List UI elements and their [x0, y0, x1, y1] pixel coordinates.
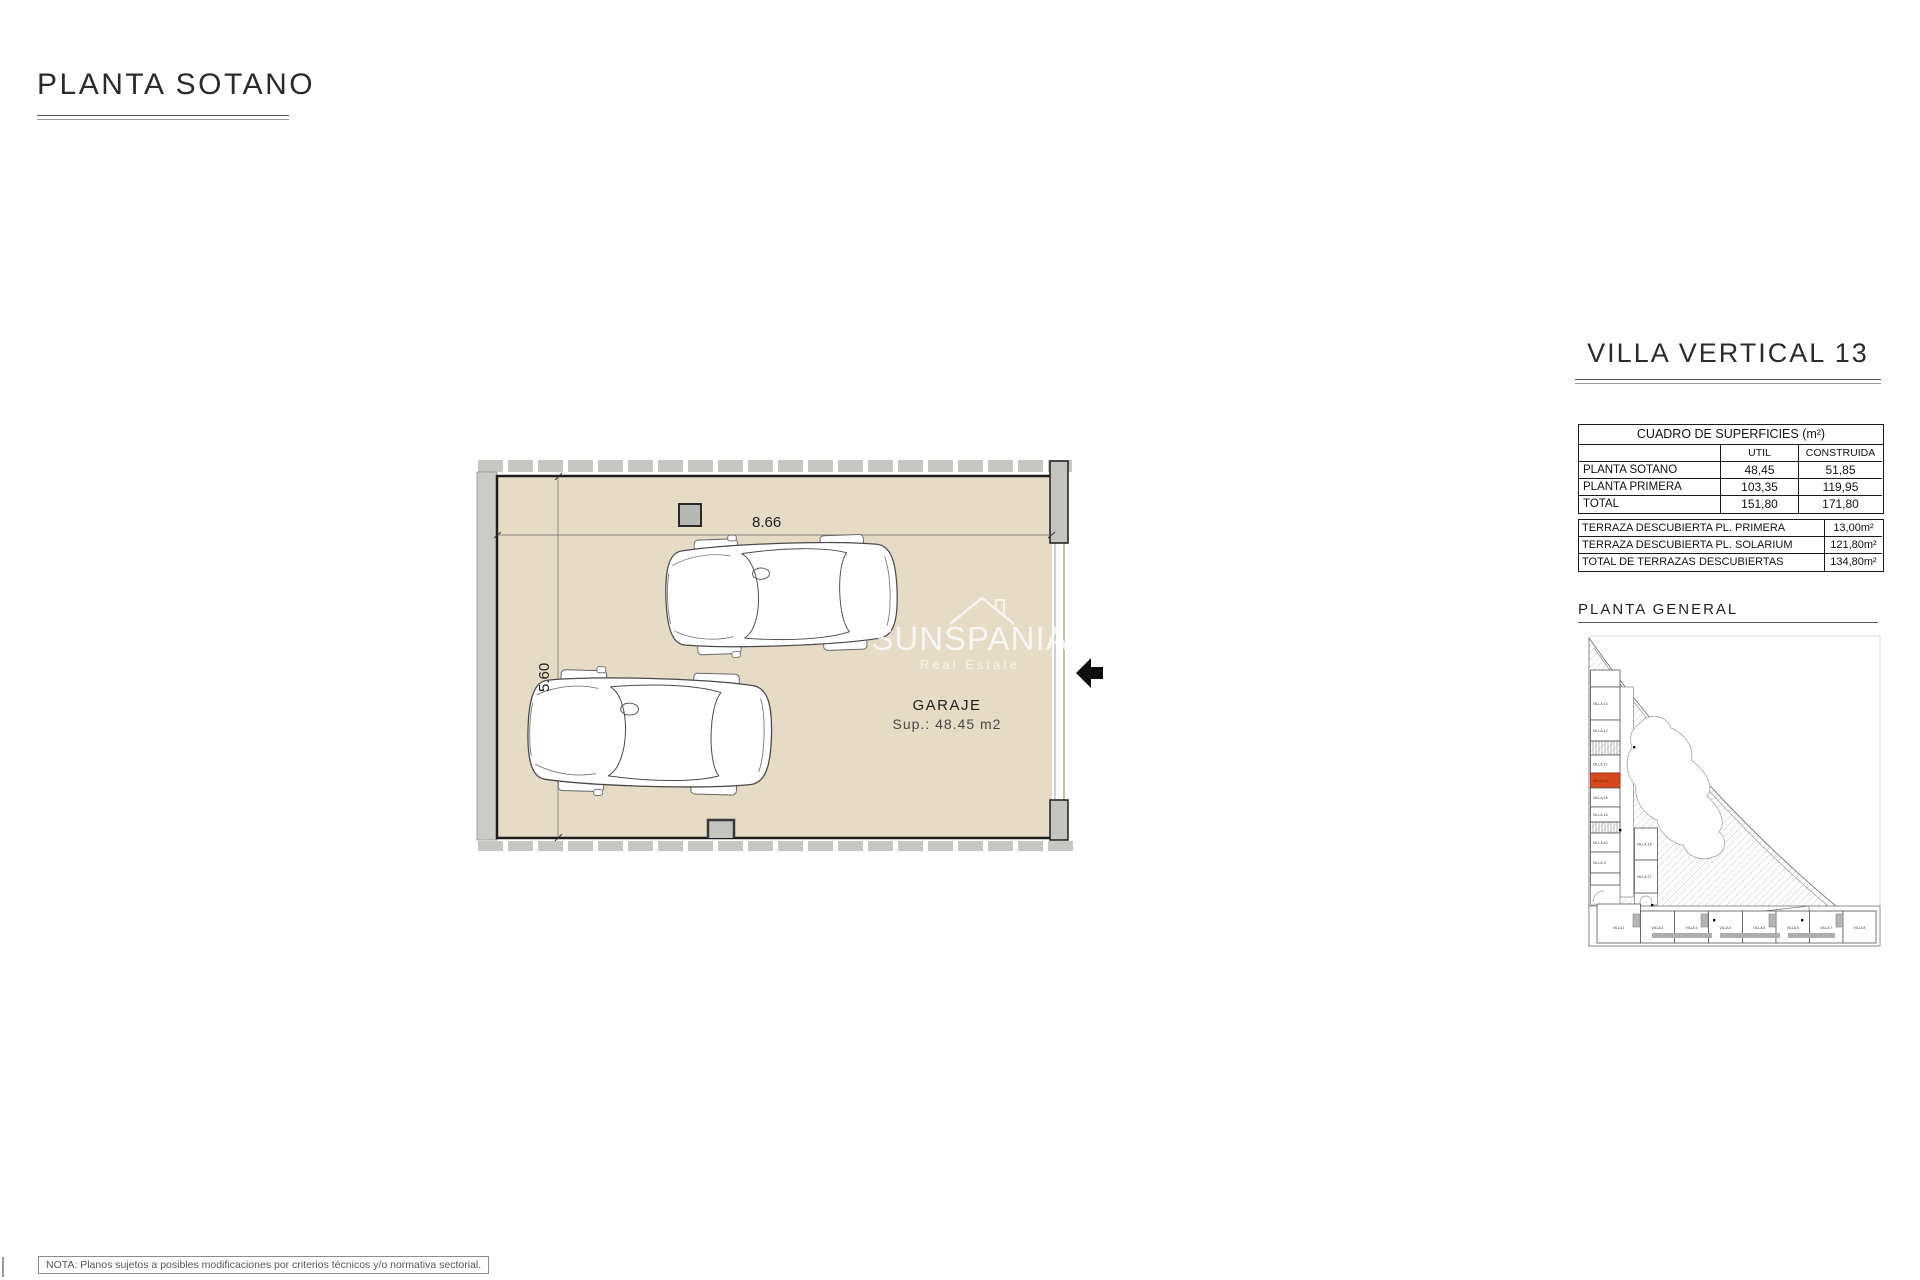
title-underline-2: [37, 119, 289, 120]
site-stair-block: [1633, 914, 1640, 927]
watermark-tagline: Real Estate: [870, 657, 1070, 672]
site-plan-unit-label: VILLA 3: [1686, 926, 1698, 930]
site-corridor: [1620, 687, 1634, 897]
site-terrace-pad: [1788, 933, 1835, 938]
site-stair-block: [1836, 914, 1843, 927]
site-plan-title: PLANTA GENERAL: [1578, 601, 1738, 618]
site-plan-unit-label: VILLA 12: [1593, 729, 1608, 733]
top-right-pillar: [1050, 461, 1068, 543]
structural-column: [679, 504, 701, 526]
height-dimension-label: 5.60: [536, 663, 553, 692]
site-plan-unit-label: VILLA 16: [1593, 813, 1608, 817]
villa-title: VILLA VERTICAL 13: [1573, 338, 1883, 369]
terrace-row-label: TERRAZA DESCUBIERTA PL. SOLARIUM: [1579, 537, 1825, 554]
site-door-marker: [1633, 746, 1635, 748]
terraces-table-grid: TERRAZA DESCUBIERTA PL. PRIMERA13,00m²TE…: [1579, 520, 1883, 571]
car-lower: [526, 665, 773, 800]
site-plan-unit-label: VILLA 10: [1593, 841, 1608, 845]
site-plan-unit: [1591, 822, 1621, 833]
site-plan-unit-label: VILLA 18: [1637, 843, 1652, 847]
page-edge-mark: [2, 1257, 4, 1277]
surfaces-row-label: TOTAL: [1579, 496, 1721, 513]
site-plan-unit-label: VILLA 14: [1593, 702, 1608, 706]
surfaces-col-construida: CONSTRUIDA: [1799, 445, 1882, 462]
surfaces-table-title: CUADRO DE SUPERFICIES (m²): [1579, 425, 1883, 445]
room-label: GARAJE: [897, 697, 997, 714]
surfaces-util-value: 48,45: [1721, 462, 1799, 479]
surfaces-col-util: UTIL: [1721, 445, 1799, 462]
site-stair-block: [1701, 914, 1708, 927]
site-plan-unit-label: VILLA 13: [1593, 779, 1608, 783]
villa-title-underline-2: [1575, 383, 1881, 384]
site-entry-cell: [1591, 885, 1621, 905]
surfaces-row-label: PLANTA SOTANO: [1579, 462, 1721, 479]
terraces-table: TERRAZA DESCUBIERTA PL. PRIMERA13,00m²TE…: [1578, 519, 1884, 572]
site-plan-unit-label: VILLA 5: [1753, 926, 1765, 930]
terrace-row-value: 134,80m²: [1825, 554, 1882, 571]
surfaces-construida-value: 171,80: [1799, 496, 1882, 513]
site-plan-unit-label: VILLA 9: [1593, 861, 1606, 865]
site-plan-unit-label: VILLA 7: [1820, 926, 1832, 930]
surfaces-row-label: PLANTA PRIMERA: [1579, 479, 1721, 496]
site-plan-unit: [1591, 873, 1621, 885]
car-upper: [664, 529, 899, 659]
surfaces-construida-value: 119,95: [1799, 479, 1882, 496]
surfaces-util-value: 103,35: [1721, 479, 1799, 496]
note-box: NOTA: Planos sujetos a posibles modifica…: [38, 1256, 489, 1274]
site-plan-unit: [1591, 741, 1621, 755]
terrace-row-value: 13,00m²: [1825, 520, 1882, 537]
site-stair-block: [1769, 914, 1776, 927]
surfaces-col-empty: [1579, 445, 1721, 462]
villa-title-underline: [1575, 379, 1881, 380]
site-plan-unit-label: VILLA 8: [1854, 926, 1866, 930]
plan-sheet: PLANTA SOTANO: [0, 0, 1920, 1280]
terrace-row-value: 121,80m²: [1825, 537, 1882, 554]
site-plan-unit-label: VILLA 2: [1652, 926, 1664, 930]
site-door-marker: [1619, 829, 1621, 831]
watermark-text: SUNSPANIA: [870, 620, 1070, 658]
site-door-marker: [1801, 919, 1803, 921]
site-plan-drawing: VILLA 14VILLA 12VILLA 11VILLA 13VILLA 15…: [1577, 630, 1887, 960]
terrace-row-label: TOTAL DE TERRAZAS DESCUBIERTAS: [1579, 554, 1825, 571]
site-plan-unit-label: VILLA 4: [1720, 926, 1732, 930]
bottom-right-pillar: [1050, 800, 1068, 840]
bottom-pilaster: [708, 820, 734, 838]
surfaces-table: CUADRO DE SUPERFICIES (m²) UTIL CONSTRUI…: [1578, 424, 1884, 514]
width-dimension-label: 8.66: [752, 514, 781, 531]
page-title: PLANTA SOTANO: [37, 68, 315, 102]
surfaces-util-value: 151,80: [1721, 496, 1799, 513]
left-wall: [477, 472, 497, 840]
site-terrace-pad: [1720, 933, 1780, 938]
entrance-arrow-icon: [1076, 654, 1104, 692]
site-plan-unit-label: VILLA 11: [1593, 763, 1607, 767]
site-plan-unit-label: VILLA 15: [1593, 796, 1608, 800]
room-area-label: Sup.: 48.45 m2: [872, 716, 1022, 732]
site-plan-underline: [1578, 622, 1878, 623]
site-plan-unit: [1591, 670, 1621, 687]
terrace-row-label: TERRAZA DESCUBIERTA PL. PRIMERA: [1579, 520, 1825, 537]
site-plan-unit-label: VILLA 6: [1787, 926, 1799, 930]
surfaces-construida-value: 51,85: [1799, 462, 1882, 479]
title-underline: [37, 115, 289, 116]
site-plan-unit-label: VILLA 1: [1613, 926, 1625, 930]
site-terrace-pad: [1652, 933, 1712, 938]
site-door-marker: [1651, 904, 1653, 906]
site-door-marker: [1713, 919, 1715, 921]
site-plan-unit-label: VILLA 17: [1637, 875, 1652, 879]
surfaces-table-grid: UTIL CONSTRUIDA PLANTA SOTANO48,4551,85P…: [1579, 445, 1883, 513]
